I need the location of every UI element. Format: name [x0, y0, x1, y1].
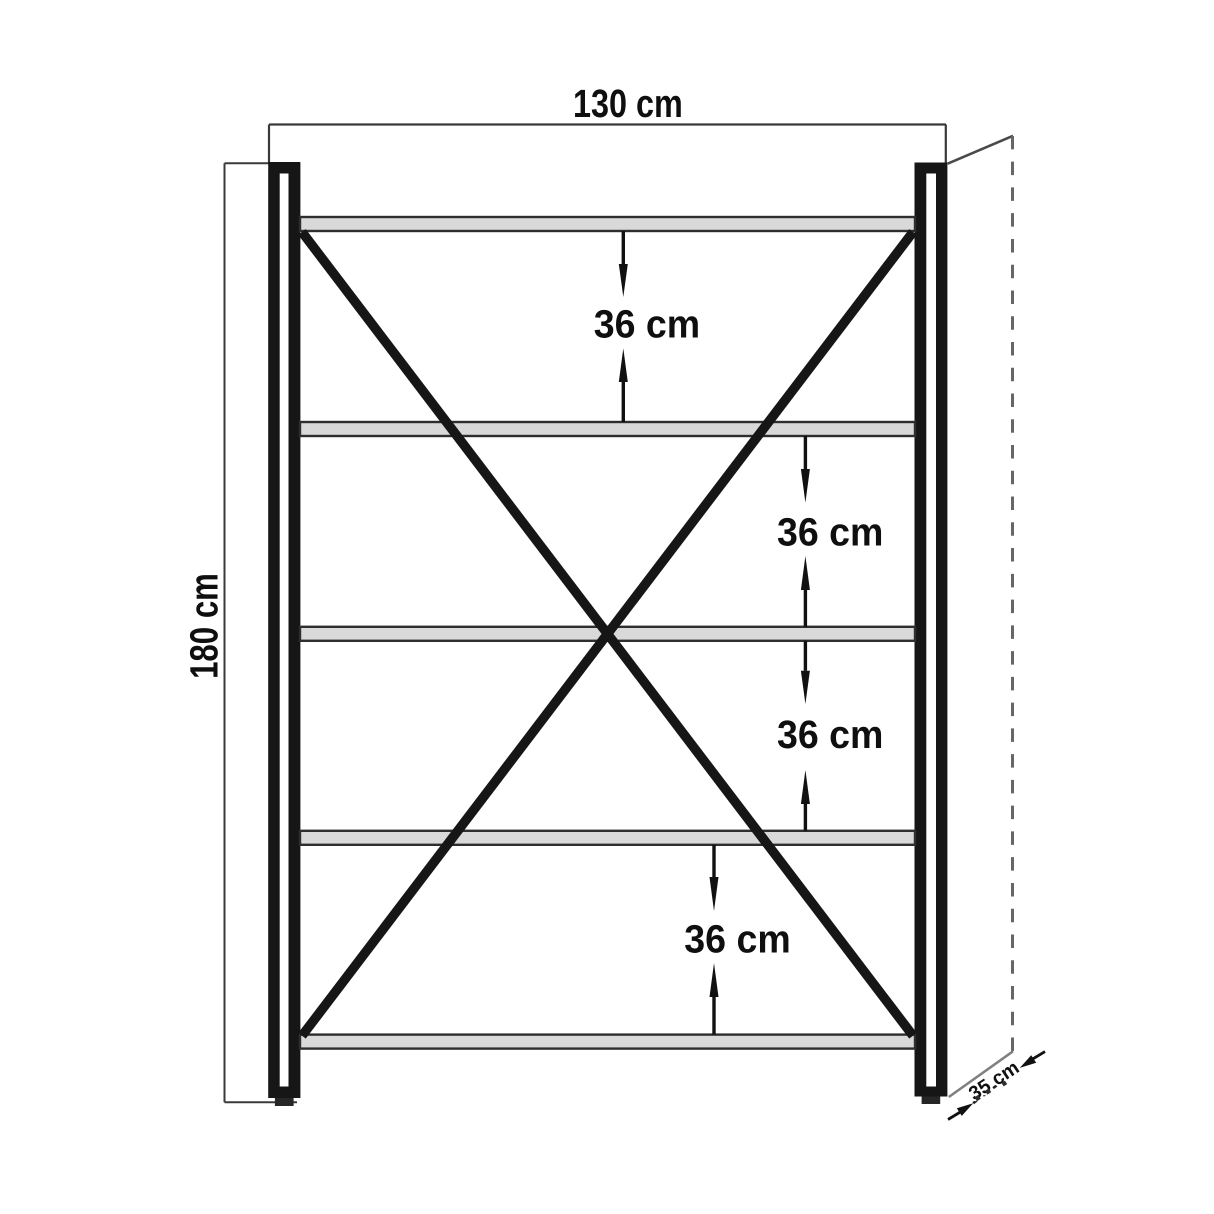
svg-text:36 cm: 36 cm: [777, 511, 883, 555]
svg-text:36 cm: 36 cm: [594, 303, 700, 347]
svg-text:180 cm: 180 cm: [183, 573, 227, 679]
svg-text:130 cm: 130 cm: [573, 82, 683, 126]
svg-text:36 cm: 36 cm: [777, 713, 883, 757]
svg-text:36 cm: 36 cm: [684, 918, 790, 962]
